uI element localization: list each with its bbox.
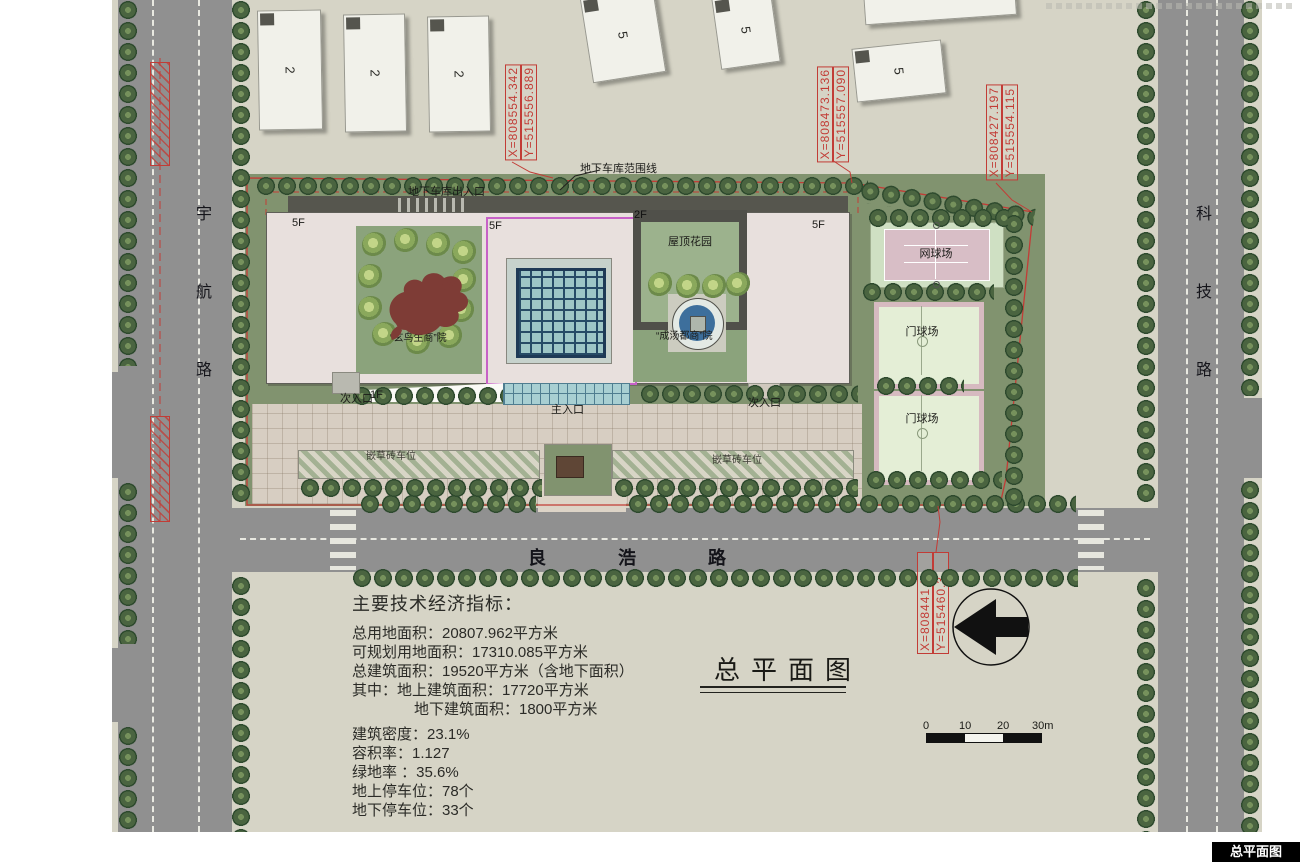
parking-strip-west bbox=[298, 450, 540, 479]
building-storey-label: 5 bbox=[738, 25, 754, 34]
road-keji-east-stub bbox=[1240, 398, 1262, 478]
tree-row bbox=[256, 176, 868, 198]
building-storey-label: 5 bbox=[615, 30, 631, 39]
tree-row bbox=[231, 0, 253, 502]
coord-x: X=808554.342 bbox=[505, 64, 521, 160]
coord-y: Y=515557.090 bbox=[833, 66, 849, 162]
title-block: 总平面图 bbox=[714, 650, 862, 687]
coord-label-2: X=808473.136 Y=515557.090 bbox=[817, 66, 849, 162]
indicator-line: 容积率：1.127 bbox=[352, 744, 672, 763]
parking-strip-label: 嵌草砖车位 bbox=[366, 452, 416, 462]
road-name-lianghao: 良 bbox=[528, 544, 546, 570]
indicators-heading: 主要技术经济指标： bbox=[352, 590, 672, 616]
road-name-yuhang: 路 bbox=[196, 356, 212, 380]
storey-label-5f: 5F bbox=[489, 221, 502, 232]
neighbor-building: 2 bbox=[427, 15, 491, 132]
lane-marking bbox=[240, 538, 1150, 540]
watermark bbox=[1046, 3, 1296, 9]
coord-y: Y=515556.889 bbox=[521, 64, 537, 160]
tree-row bbox=[1240, 480, 1262, 832]
scale-ticks: 0 10 20 30m bbox=[926, 720, 1056, 733]
scale-bar-segments bbox=[926, 733, 1042, 743]
stair-core bbox=[430, 19, 444, 31]
secondary-entrance-label: 次入口 bbox=[748, 398, 781, 409]
lane-marking bbox=[1186, 0, 1188, 832]
coord-y: Y=515554.115 bbox=[1002, 84, 1018, 180]
indicator-line: 地下建筑面积：1800平方米 bbox=[352, 700, 672, 719]
lane-marking bbox=[198, 0, 200, 832]
tree bbox=[702, 274, 728, 300]
scale-segment bbox=[965, 734, 1003, 742]
building-storey-label: 5 bbox=[891, 67, 907, 76]
tree-row bbox=[862, 282, 994, 304]
scale-tick: 20 bbox=[997, 720, 1009, 732]
north-arrow-icon bbox=[948, 586, 1034, 670]
road-name-keji: 科 bbox=[1196, 200, 1212, 224]
storey-label-5f: 5F bbox=[292, 218, 305, 229]
road-lianghao bbox=[232, 508, 1158, 572]
indicator-line: 绿地率 ：35.6% bbox=[352, 763, 672, 782]
stair-core bbox=[855, 50, 870, 63]
scale-segment bbox=[1003, 734, 1041, 742]
coord-label-3: X=808427.197 Y=515554.115 bbox=[986, 84, 1018, 180]
scale-tick: 10 bbox=[959, 720, 971, 732]
corner-stamp: 总平面图 bbox=[1212, 842, 1300, 862]
tree bbox=[358, 264, 384, 290]
scale-segment bbox=[927, 734, 965, 742]
building-storey-label: 2 bbox=[451, 70, 466, 77]
building-storey-label: 2 bbox=[282, 66, 297, 73]
building-storey-label: 2 bbox=[367, 69, 382, 76]
tree-row bbox=[300, 478, 542, 500]
tree-row bbox=[118, 482, 140, 644]
tree bbox=[362, 232, 388, 258]
tree-row bbox=[1240, 0, 1262, 396]
red-line-marker bbox=[150, 62, 170, 166]
tree-row bbox=[118, 726, 140, 832]
tree bbox=[358, 296, 384, 322]
secondary-entrance-steps bbox=[332, 372, 360, 394]
tree bbox=[452, 240, 478, 266]
scale-bar: 0 10 20 30m bbox=[926, 720, 1056, 743]
main-entrance-canopy bbox=[503, 383, 630, 405]
neighbor-building: 2 bbox=[343, 13, 407, 132]
tennis-service-line bbox=[904, 245, 968, 246]
tree bbox=[726, 272, 752, 298]
courtyard-west-label: “玄鸟生商”院 bbox=[390, 334, 447, 344]
scale-tick: 0 bbox=[923, 720, 929, 732]
gateball-court-label: 门球场 bbox=[894, 414, 950, 425]
tree bbox=[452, 268, 478, 294]
crosswalk bbox=[1078, 510, 1104, 570]
gateball-court-label: 门球场 bbox=[894, 327, 950, 338]
indicator-line: 地下停车位：33个 bbox=[352, 801, 672, 820]
tree-row bbox=[876, 376, 964, 396]
road-yuhang-west-stub-1 bbox=[112, 372, 232, 478]
fountain-center-structure bbox=[690, 316, 706, 332]
road-name-lianghao: 浩 bbox=[618, 544, 636, 570]
neighbor-building: 5 bbox=[711, 0, 780, 70]
tree-row bbox=[614, 478, 858, 500]
neighbor-building: 5 bbox=[851, 39, 946, 102]
indicator-line: 总用地面积：20807.962平方米 bbox=[352, 624, 672, 643]
indicator-line: 建筑密度：23.1% bbox=[352, 725, 672, 744]
main-entrance-label: 主入口 bbox=[551, 405, 584, 416]
tennis-service-line bbox=[904, 262, 968, 263]
storey-label-2f: 2F bbox=[634, 210, 647, 221]
neighbor-building: 2 bbox=[257, 9, 323, 130]
atrium-skylight bbox=[516, 268, 606, 358]
neighbor-building: 5 bbox=[580, 0, 667, 83]
tree bbox=[394, 228, 420, 254]
tree bbox=[450, 298, 476, 324]
road-name-yuhang: 宇 bbox=[196, 200, 212, 224]
coord-x: X=808473.136 bbox=[817, 66, 833, 162]
storey-label-5f: 5F bbox=[812, 220, 825, 231]
tree bbox=[426, 232, 452, 258]
indicators-panel: 主要技术经济指标： 总用地面积：20807.962平方米 可规划用地面积：173… bbox=[352, 590, 672, 820]
road-keji bbox=[1158, 0, 1244, 832]
stair-core bbox=[583, 0, 599, 13]
garage-entrance-label: 地下车库出入口 bbox=[408, 187, 485, 198]
site-plan-drawing: 2 2 2 5 5 5 bbox=[0, 0, 1300, 862]
red-line-marker bbox=[150, 416, 170, 522]
indicator-line: 其中：地上建筑面积：17720平方米 bbox=[352, 681, 672, 700]
coord-x: X=808427.197 bbox=[986, 84, 1002, 180]
tree-row bbox=[866, 470, 1002, 492]
tree-row bbox=[1136, 0, 1158, 502]
indicator-line: 总建筑面积：19520平方米（含地下面积） bbox=[352, 662, 672, 681]
title-underline bbox=[700, 686, 846, 688]
indicator-line: 地上停车位：78个 bbox=[352, 782, 672, 801]
guard-kiosk bbox=[556, 456, 584, 478]
crosswalk bbox=[330, 510, 356, 570]
courtyard-east-label: “成汤都商”院 bbox=[656, 332, 713, 342]
road-name-keji: 路 bbox=[1196, 356, 1212, 380]
stair-core bbox=[346, 17, 360, 29]
tree-row bbox=[1136, 578, 1158, 832]
net-post bbox=[933, 222, 940, 229]
tree bbox=[676, 274, 702, 300]
roof-garden-label: 屋顶花园 bbox=[668, 237, 712, 248]
tree-row bbox=[231, 576, 253, 832]
stair-core bbox=[260, 13, 274, 25]
tennis-court-label: 网球场 bbox=[906, 249, 966, 260]
road-name-lianghao: 路 bbox=[708, 544, 726, 570]
west-lawn-band bbox=[252, 212, 266, 404]
drawing-title: 总平面图 bbox=[714, 650, 862, 687]
stair-core bbox=[715, 0, 731, 13]
lane-marking bbox=[1216, 0, 1218, 832]
coord-label-1: X=808554.342 Y=515556.889 bbox=[505, 64, 537, 160]
tree-row bbox=[1004, 214, 1026, 506]
net-post bbox=[933, 281, 940, 288]
tree bbox=[648, 272, 674, 298]
indicator-line: 可规划用地面积：17310.085平方米 bbox=[352, 643, 672, 662]
garage-ramp bbox=[398, 198, 468, 212]
road-name-keji: 技 bbox=[1196, 278, 1212, 302]
title-underline bbox=[700, 692, 846, 693]
garage-boundary-label: 地下车库范围线 bbox=[580, 164, 657, 175]
parking-strip-label: 嵌草砖车位 bbox=[712, 456, 762, 466]
court-center-mark bbox=[917, 428, 928, 439]
road-name-yuhang: 航 bbox=[196, 278, 212, 302]
tree-row bbox=[118, 0, 140, 366]
secondary-entrance-label: 次入口 bbox=[340, 394, 373, 405]
road-yuhang-west-stub-2 bbox=[112, 648, 232, 722]
scale-tick: 30m bbox=[1032, 720, 1053, 732]
